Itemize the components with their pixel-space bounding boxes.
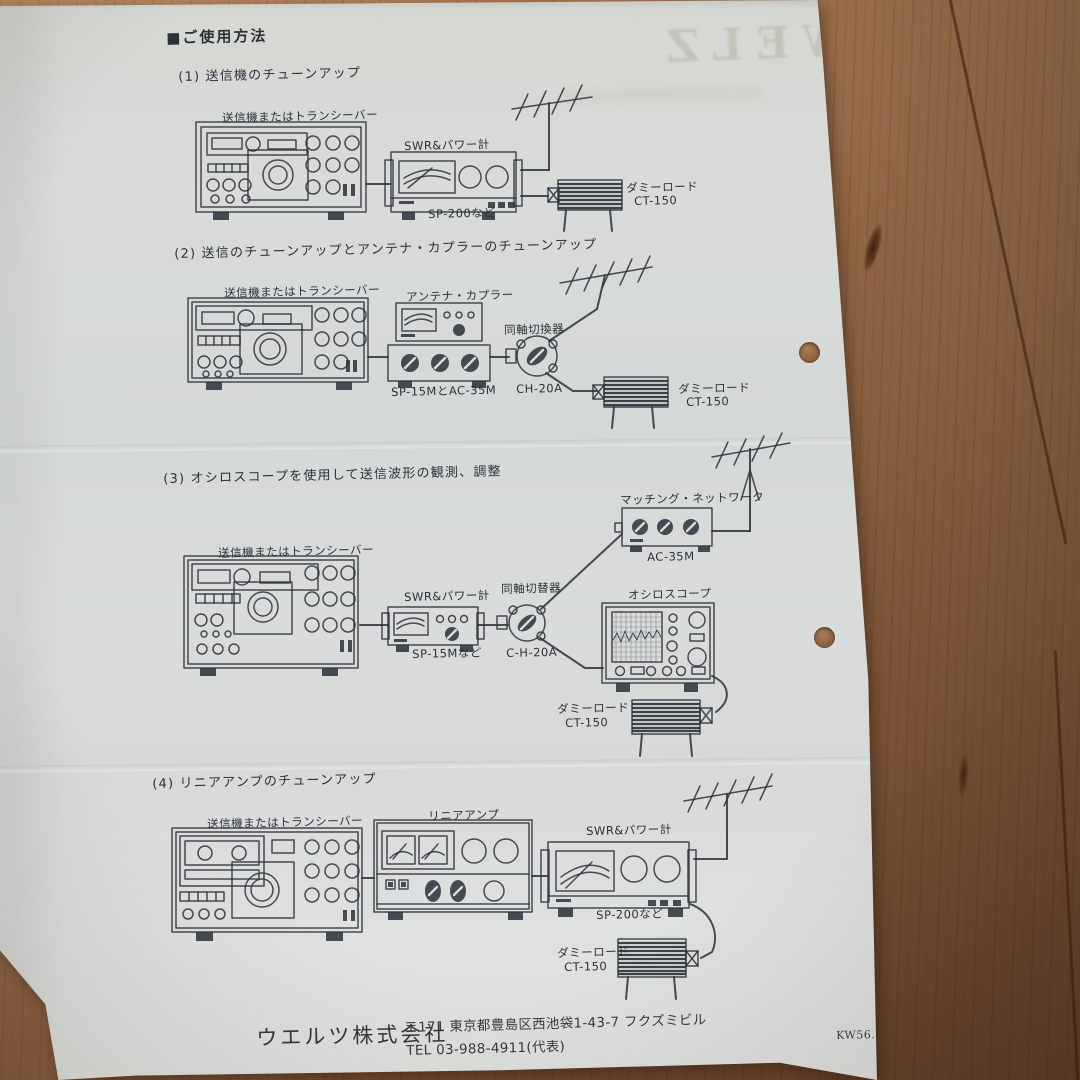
diagram-3 bbox=[184, 433, 790, 756]
wire bbox=[546, 373, 597, 391]
dummy-load-drawing bbox=[618, 939, 698, 999]
punch-hole bbox=[799, 342, 820, 363]
transceiver-drawing bbox=[172, 828, 362, 941]
oscilloscope-drawing bbox=[602, 603, 714, 692]
antenna-symbol bbox=[712, 433, 790, 531]
diagram-line-art bbox=[0, 0, 1080, 1080]
instruction-sheet-paper: WELZ ■ご使用方法 (1) 送信機のチューンアップ 送信機またはトランシーバ… bbox=[0, 0, 1080, 1080]
antenna-symbol bbox=[549, 256, 652, 341]
dummy-load-drawing bbox=[593, 377, 668, 428]
antenna-symbol bbox=[684, 774, 772, 859]
dummy-load-drawing bbox=[632, 700, 712, 756]
dummy-load-drawing bbox=[548, 180, 622, 231]
transceiver-drawing bbox=[188, 298, 368, 390]
cable bbox=[690, 904, 715, 958]
swr-meter-drawing bbox=[541, 842, 696, 917]
wire bbox=[540, 638, 603, 668]
wire bbox=[541, 534, 622, 609]
punch-hole bbox=[814, 627, 835, 648]
diagram-2 bbox=[188, 256, 668, 428]
matching-network-drawing bbox=[615, 508, 712, 552]
swr-meter-drawing bbox=[385, 152, 522, 220]
diagram-1 bbox=[196, 85, 622, 231]
paper-shadow: WELZ ■ご使用方法 (1) 送信機のチューンアップ 送信機またはトランシーバ… bbox=[0, 0, 1080, 1080]
transceiver-drawing bbox=[196, 122, 366, 220]
coax-switch-drawing bbox=[497, 605, 545, 641]
swr-meter-drawing bbox=[382, 607, 484, 652]
photo-of-instruction-sheet: WELZ ■ご使用方法 (1) 送信機のチューンアップ 送信機またはトランシーバ… bbox=[0, 0, 1080, 1080]
antenna-coupler-drawing bbox=[388, 303, 490, 388]
diagram-4 bbox=[172, 774, 772, 999]
transceiver-drawing bbox=[184, 556, 358, 676]
coax-switch-drawing bbox=[506, 336, 557, 376]
antenna-symbol bbox=[512, 85, 592, 170]
linear-amp-drawing bbox=[374, 820, 532, 920]
